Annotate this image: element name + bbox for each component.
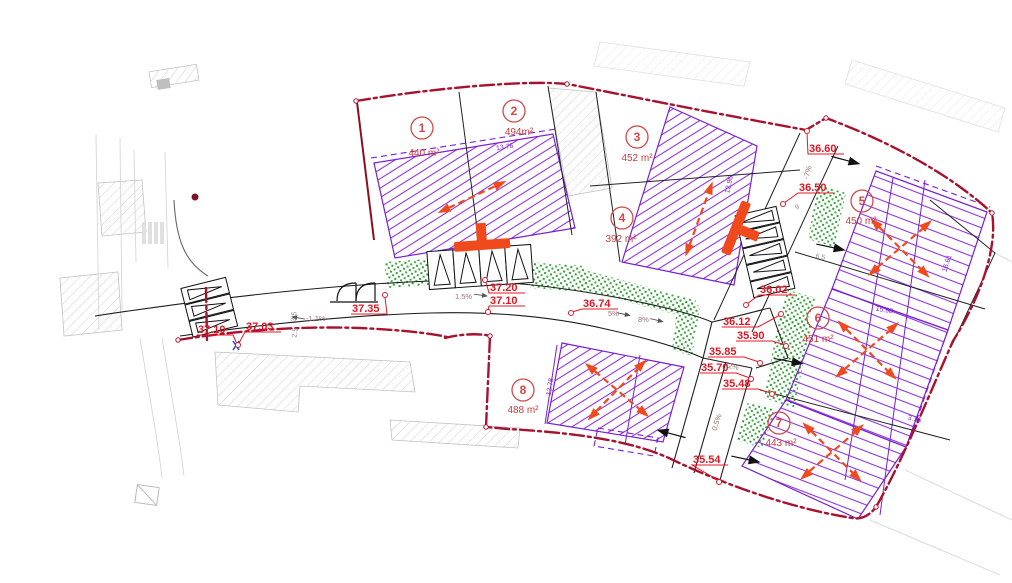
spot-elevation: 37.03 (246, 321, 274, 333)
dimension-label: 3.5 (290, 311, 298, 322)
slope-label: -1.1% (306, 314, 326, 323)
spot-elevation: 36.12 (723, 316, 751, 328)
slope-label: 0.5% (710, 412, 724, 431)
spot-elevation: 35.70 (701, 362, 729, 374)
spot-elevation: 35.90 (737, 330, 765, 342)
green-strip (808, 185, 846, 247)
survey-benchmark-dot (192, 194, 199, 201)
lot-8-number: 8 (520, 383, 527, 397)
lot-8-area: 488 m² (507, 405, 539, 416)
slope-label: 1.5% (455, 292, 472, 301)
spot-elevation: 36.50 (799, 182, 827, 194)
spot-elevation: 37.35 (352, 303, 380, 315)
dimension-label: 9 (794, 204, 801, 212)
lot-2-area: 494m² (505, 127, 534, 138)
slope-label: -7% (802, 164, 814, 180)
lot-5-area: 450 m² (845, 216, 877, 227)
lot-6-area: 451 m² (802, 334, 834, 345)
building-envelope-lots-3-4 (622, 107, 757, 285)
lot-3-number: 3 (634, 130, 641, 144)
dimension-label: 2.5 (291, 327, 299, 338)
spot-elevation: 37.20 (490, 282, 518, 294)
dimension-label: 6.5 (815, 253, 826, 262)
lot-2-number: 2 (511, 104, 518, 118)
spot-elevation: 35.54 (693, 454, 721, 466)
slope-label: 8% (638, 315, 649, 324)
lot-7-number: 7 (776, 416, 783, 430)
lot-6-number: 6 (815, 311, 822, 325)
spot-elevation: 36.02 (760, 284, 788, 296)
spot-elevation: 35.48 (723, 378, 751, 390)
spot-elevation: 37.10 (198, 324, 226, 336)
slope-label: 2% (727, 361, 740, 372)
spot-elevation: 37.10 (490, 295, 518, 307)
lot-4-area: 392 m² (605, 234, 637, 245)
lot-3-area: 452 m² (621, 153, 653, 164)
lot-1-number: 1 (419, 121, 426, 135)
slope-label: 5% (608, 309, 619, 318)
lot-1-area: 440 m² (408, 148, 440, 159)
lot-7-area: 443 m² (765, 438, 797, 449)
spot-elevation: 36.60 (809, 143, 837, 155)
lot-5-number: 5 (859, 194, 866, 208)
lot-4-number: 4 (619, 211, 626, 225)
spot-elevation: 35.85 (709, 346, 737, 358)
site-plan-drawing: 1 440 m² 2 494m² 3 452 m² 4 392 m² 5 450… (0, 0, 1012, 583)
site-plan-page: 1 440 m² 2 494m² 3 452 m² 4 392 m² 5 450… (0, 0, 1012, 583)
